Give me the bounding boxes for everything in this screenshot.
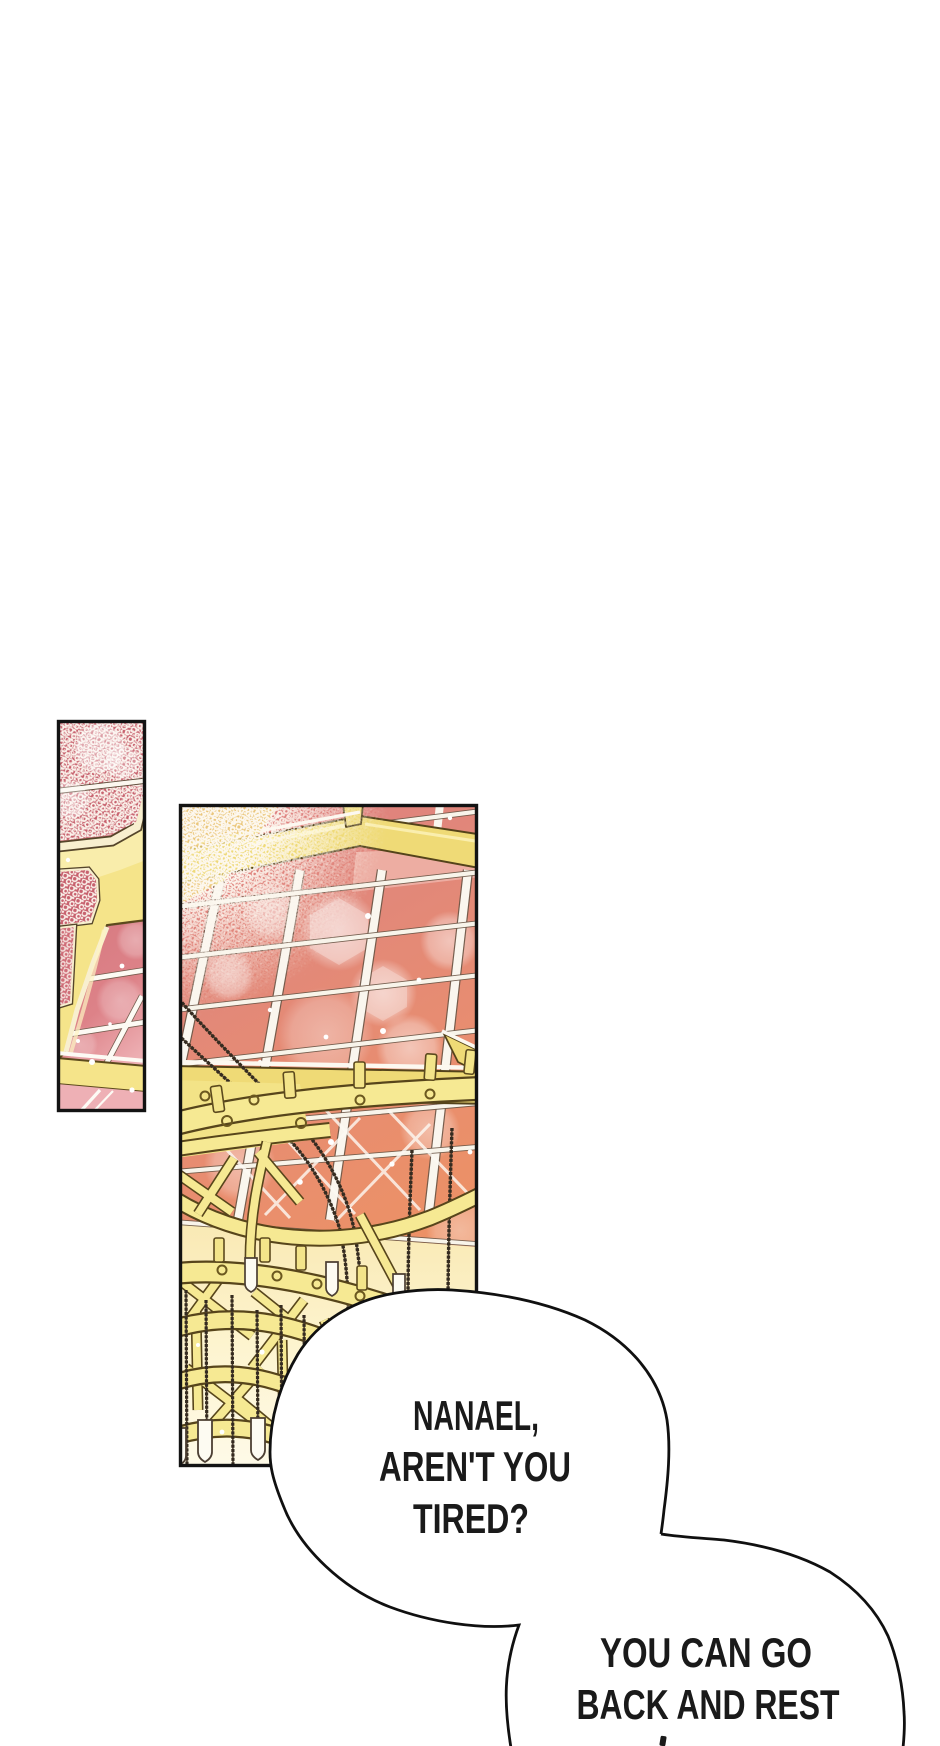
svg-text:AREN'T YOU: AREN'T YOU	[379, 1443, 571, 1490]
svg-text:BACK AND REST: BACK AND REST	[577, 1681, 840, 1728]
svg-text:NANAEL,: NANAEL,	[413, 1392, 539, 1439]
svg-text:TIRED?: TIRED?	[413, 1495, 529, 1542]
svg-text:YOU CAN GO: YOU CAN GO	[600, 1629, 812, 1676]
